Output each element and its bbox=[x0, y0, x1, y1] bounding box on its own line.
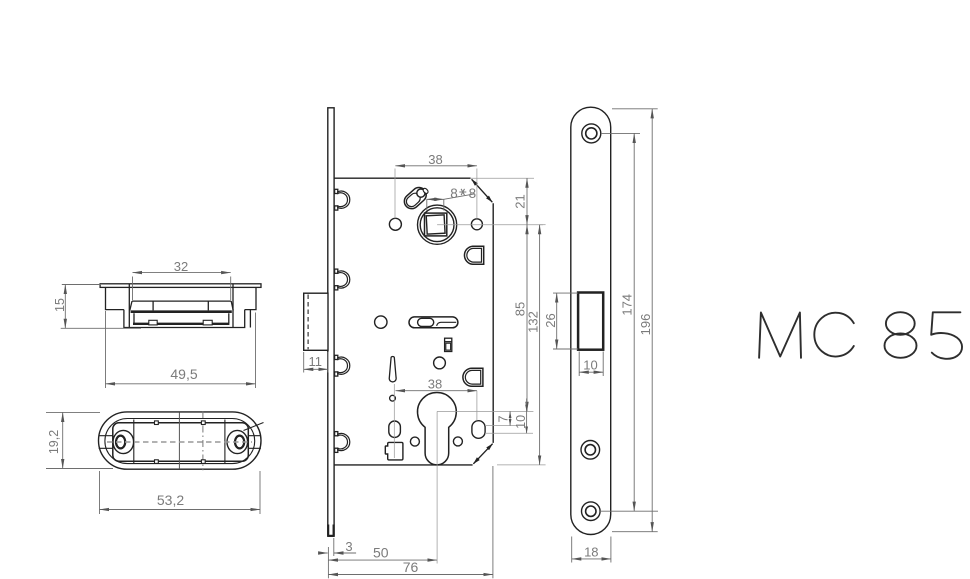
svg-text:38: 38 bbox=[428, 152, 442, 167]
svg-text:10: 10 bbox=[583, 358, 597, 373]
svg-text:196: 196 bbox=[638, 314, 653, 336]
svg-text:49,5: 49,5 bbox=[170, 366, 197, 382]
svg-text:38: 38 bbox=[428, 377, 442, 392]
svg-text:18: 18 bbox=[584, 545, 598, 560]
svg-text:8: 8 bbox=[450, 186, 458, 201]
svg-text:21: 21 bbox=[512, 194, 527, 208]
svg-text:76: 76 bbox=[403, 559, 419, 575]
svg-text:15: 15 bbox=[53, 298, 67, 312]
svg-text:19,2: 19,2 bbox=[47, 430, 61, 454]
svg-text:7: 7 bbox=[496, 415, 510, 422]
svg-text:50: 50 bbox=[373, 545, 389, 561]
svg-text:10: 10 bbox=[514, 415, 528, 429]
svg-text:3: 3 bbox=[345, 539, 352, 554]
svg-text:132: 132 bbox=[525, 311, 540, 333]
svg-text:8: 8 bbox=[469, 186, 477, 201]
svg-text:26: 26 bbox=[543, 313, 558, 327]
svg-text:11: 11 bbox=[309, 354, 323, 369]
svg-text:32: 32 bbox=[174, 259, 188, 274]
svg-text:174: 174 bbox=[619, 294, 634, 316]
svg-text:53,2: 53,2 bbox=[157, 492, 184, 508]
